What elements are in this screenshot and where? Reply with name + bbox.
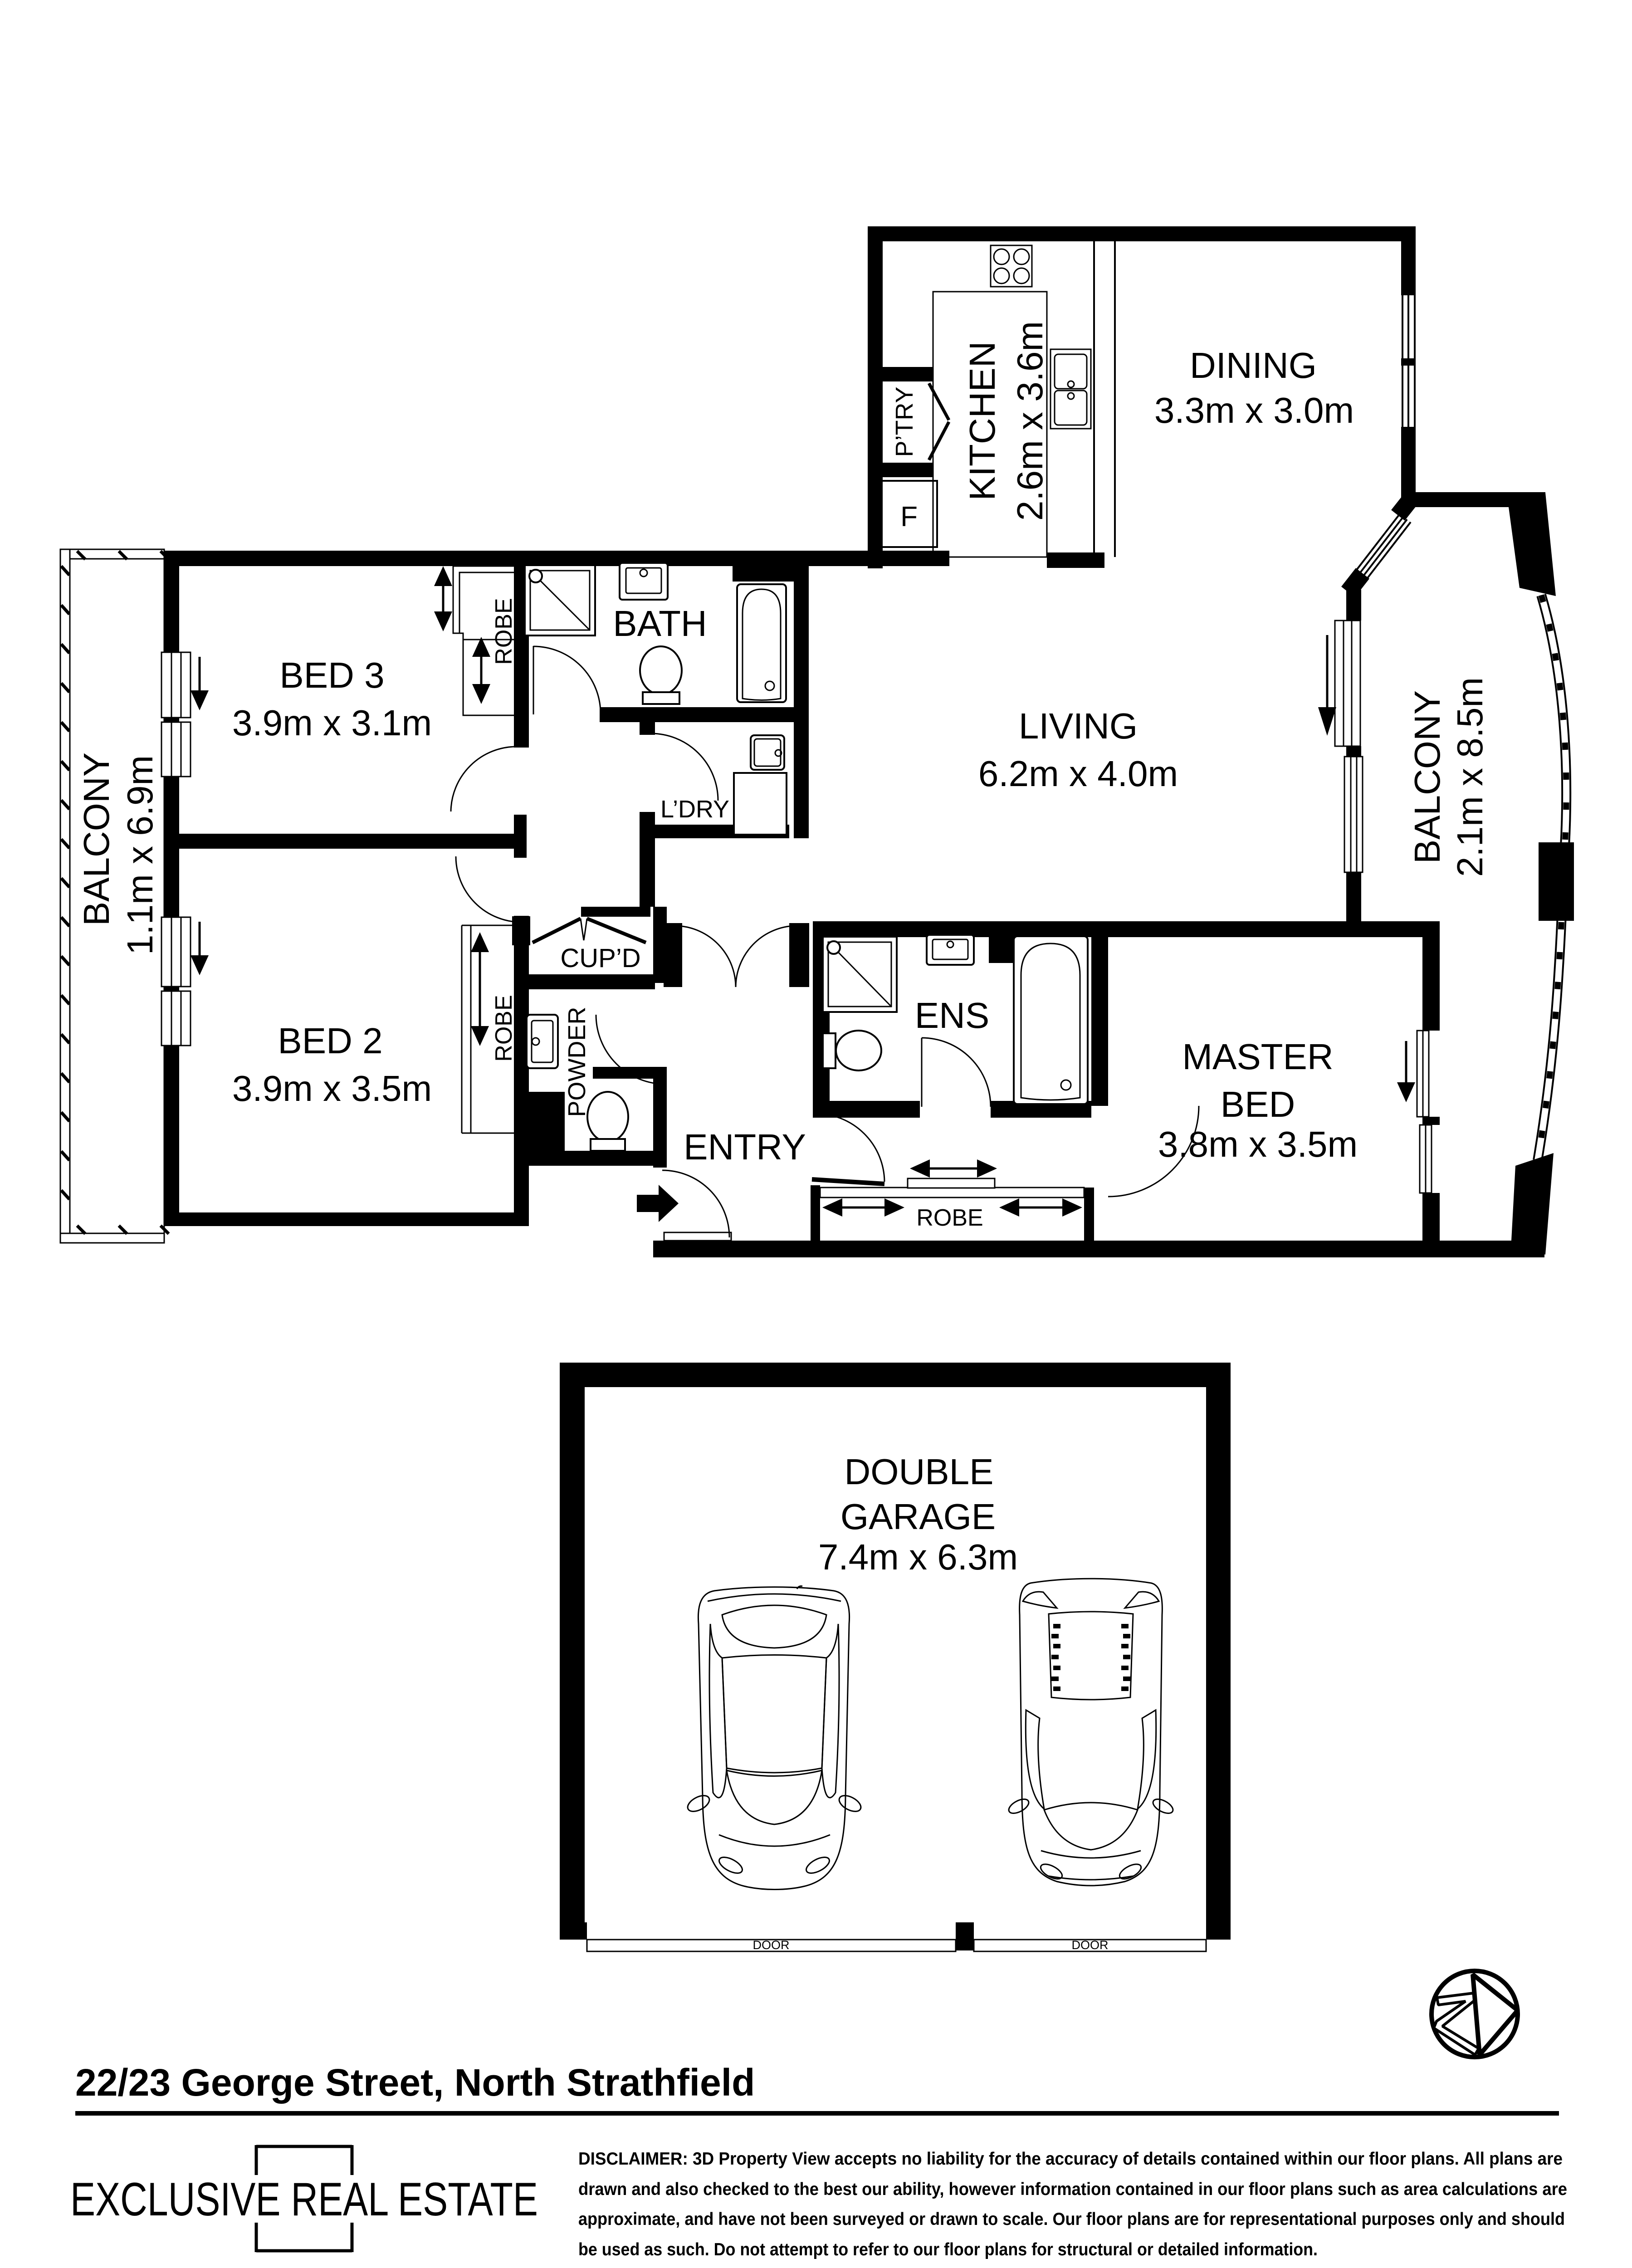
svg-text:BED: BED <box>1221 1084 1295 1124</box>
svg-text:DOOR: DOOR <box>1072 1938 1109 1952</box>
svg-text:22/23 George Street, North Str: 22/23 George Street, North Strathfield <box>75 2061 755 2104</box>
svg-text:approximate, and have not been: approximate, and have not been surveyed … <box>578 2209 1565 2229</box>
svg-text:BED 3: BED 3 <box>279 655 384 695</box>
svg-text:3.8m x 3.5m: 3.8m x 3.5m <box>1158 1124 1358 1164</box>
svg-text:2.6m x 3.6m: 2.6m x 3.6m <box>1010 321 1050 521</box>
svg-text:1.1m x 6.9m: 1.1m x 6.9m <box>120 755 160 955</box>
svg-text:7.4m x 6.3m: 7.4m x 6.3m <box>818 1537 1018 1577</box>
svg-text:F: F <box>900 501 918 533</box>
svg-text:GARAGE: GARAGE <box>840 1496 996 1537</box>
svg-text:EXCLUSIVE REAL ESTATE: EXCLUSIVE REAL ESTATE <box>70 2173 538 2226</box>
svg-text:DINING: DINING <box>1190 345 1317 386</box>
svg-text:ENS: ENS <box>915 995 990 1036</box>
svg-text:ROBE: ROBE <box>491 598 517 665</box>
svg-text:POWDER: POWDER <box>563 1007 591 1117</box>
svg-text:MASTER: MASTER <box>1182 1036 1333 1077</box>
svg-text:KITCHEN: KITCHEN <box>962 341 1002 500</box>
svg-text:3.3m x 3.0m: 3.3m x 3.0m <box>1154 390 1354 430</box>
svg-text:LIVING: LIVING <box>1019 706 1138 746</box>
svg-text:BED 2: BED 2 <box>278 1021 382 1061</box>
svg-text:3.9m x 3.5m: 3.9m x 3.5m <box>232 1068 432 1109</box>
svg-text:DISCLAIMER: 3D Property View a: DISCLAIMER: 3D Property View accepts no … <box>578 2149 1563 2169</box>
svg-text:DOUBLE: DOUBLE <box>845 1452 994 1492</box>
svg-text:ROBE: ROBE <box>491 995 517 1061</box>
svg-text:6.2m x 4.0m: 6.2m x 4.0m <box>978 753 1178 794</box>
svg-text:BALCONY: BALCONY <box>76 753 117 926</box>
svg-text:3.9m x 3.1m: 3.9m x 3.1m <box>232 703 432 743</box>
svg-text:BATH: BATH <box>613 603 707 644</box>
svg-text:P’TRY: P’TRY <box>891 386 918 457</box>
svg-text:DOOR: DOOR <box>753 1938 790 1952</box>
svg-text:ENTRY: ENTRY <box>684 1127 806 1167</box>
svg-text:BALCONY: BALCONY <box>1407 690 1447 864</box>
svg-text:2.1m x 8.5m: 2.1m x 8.5m <box>1450 677 1490 877</box>
svg-text:ROBE: ROBE <box>916 1205 983 1231</box>
svg-text:L’DRY: L’DRY <box>660 796 729 823</box>
svg-text:be used as such. Do not attemp: be used as such. Do not attempt to refer… <box>578 2240 1318 2259</box>
svg-text:drawn and also checked to the: drawn and also checked to the best our a… <box>578 2180 1567 2199</box>
svg-text:CUP’D: CUP’D <box>560 943 640 973</box>
